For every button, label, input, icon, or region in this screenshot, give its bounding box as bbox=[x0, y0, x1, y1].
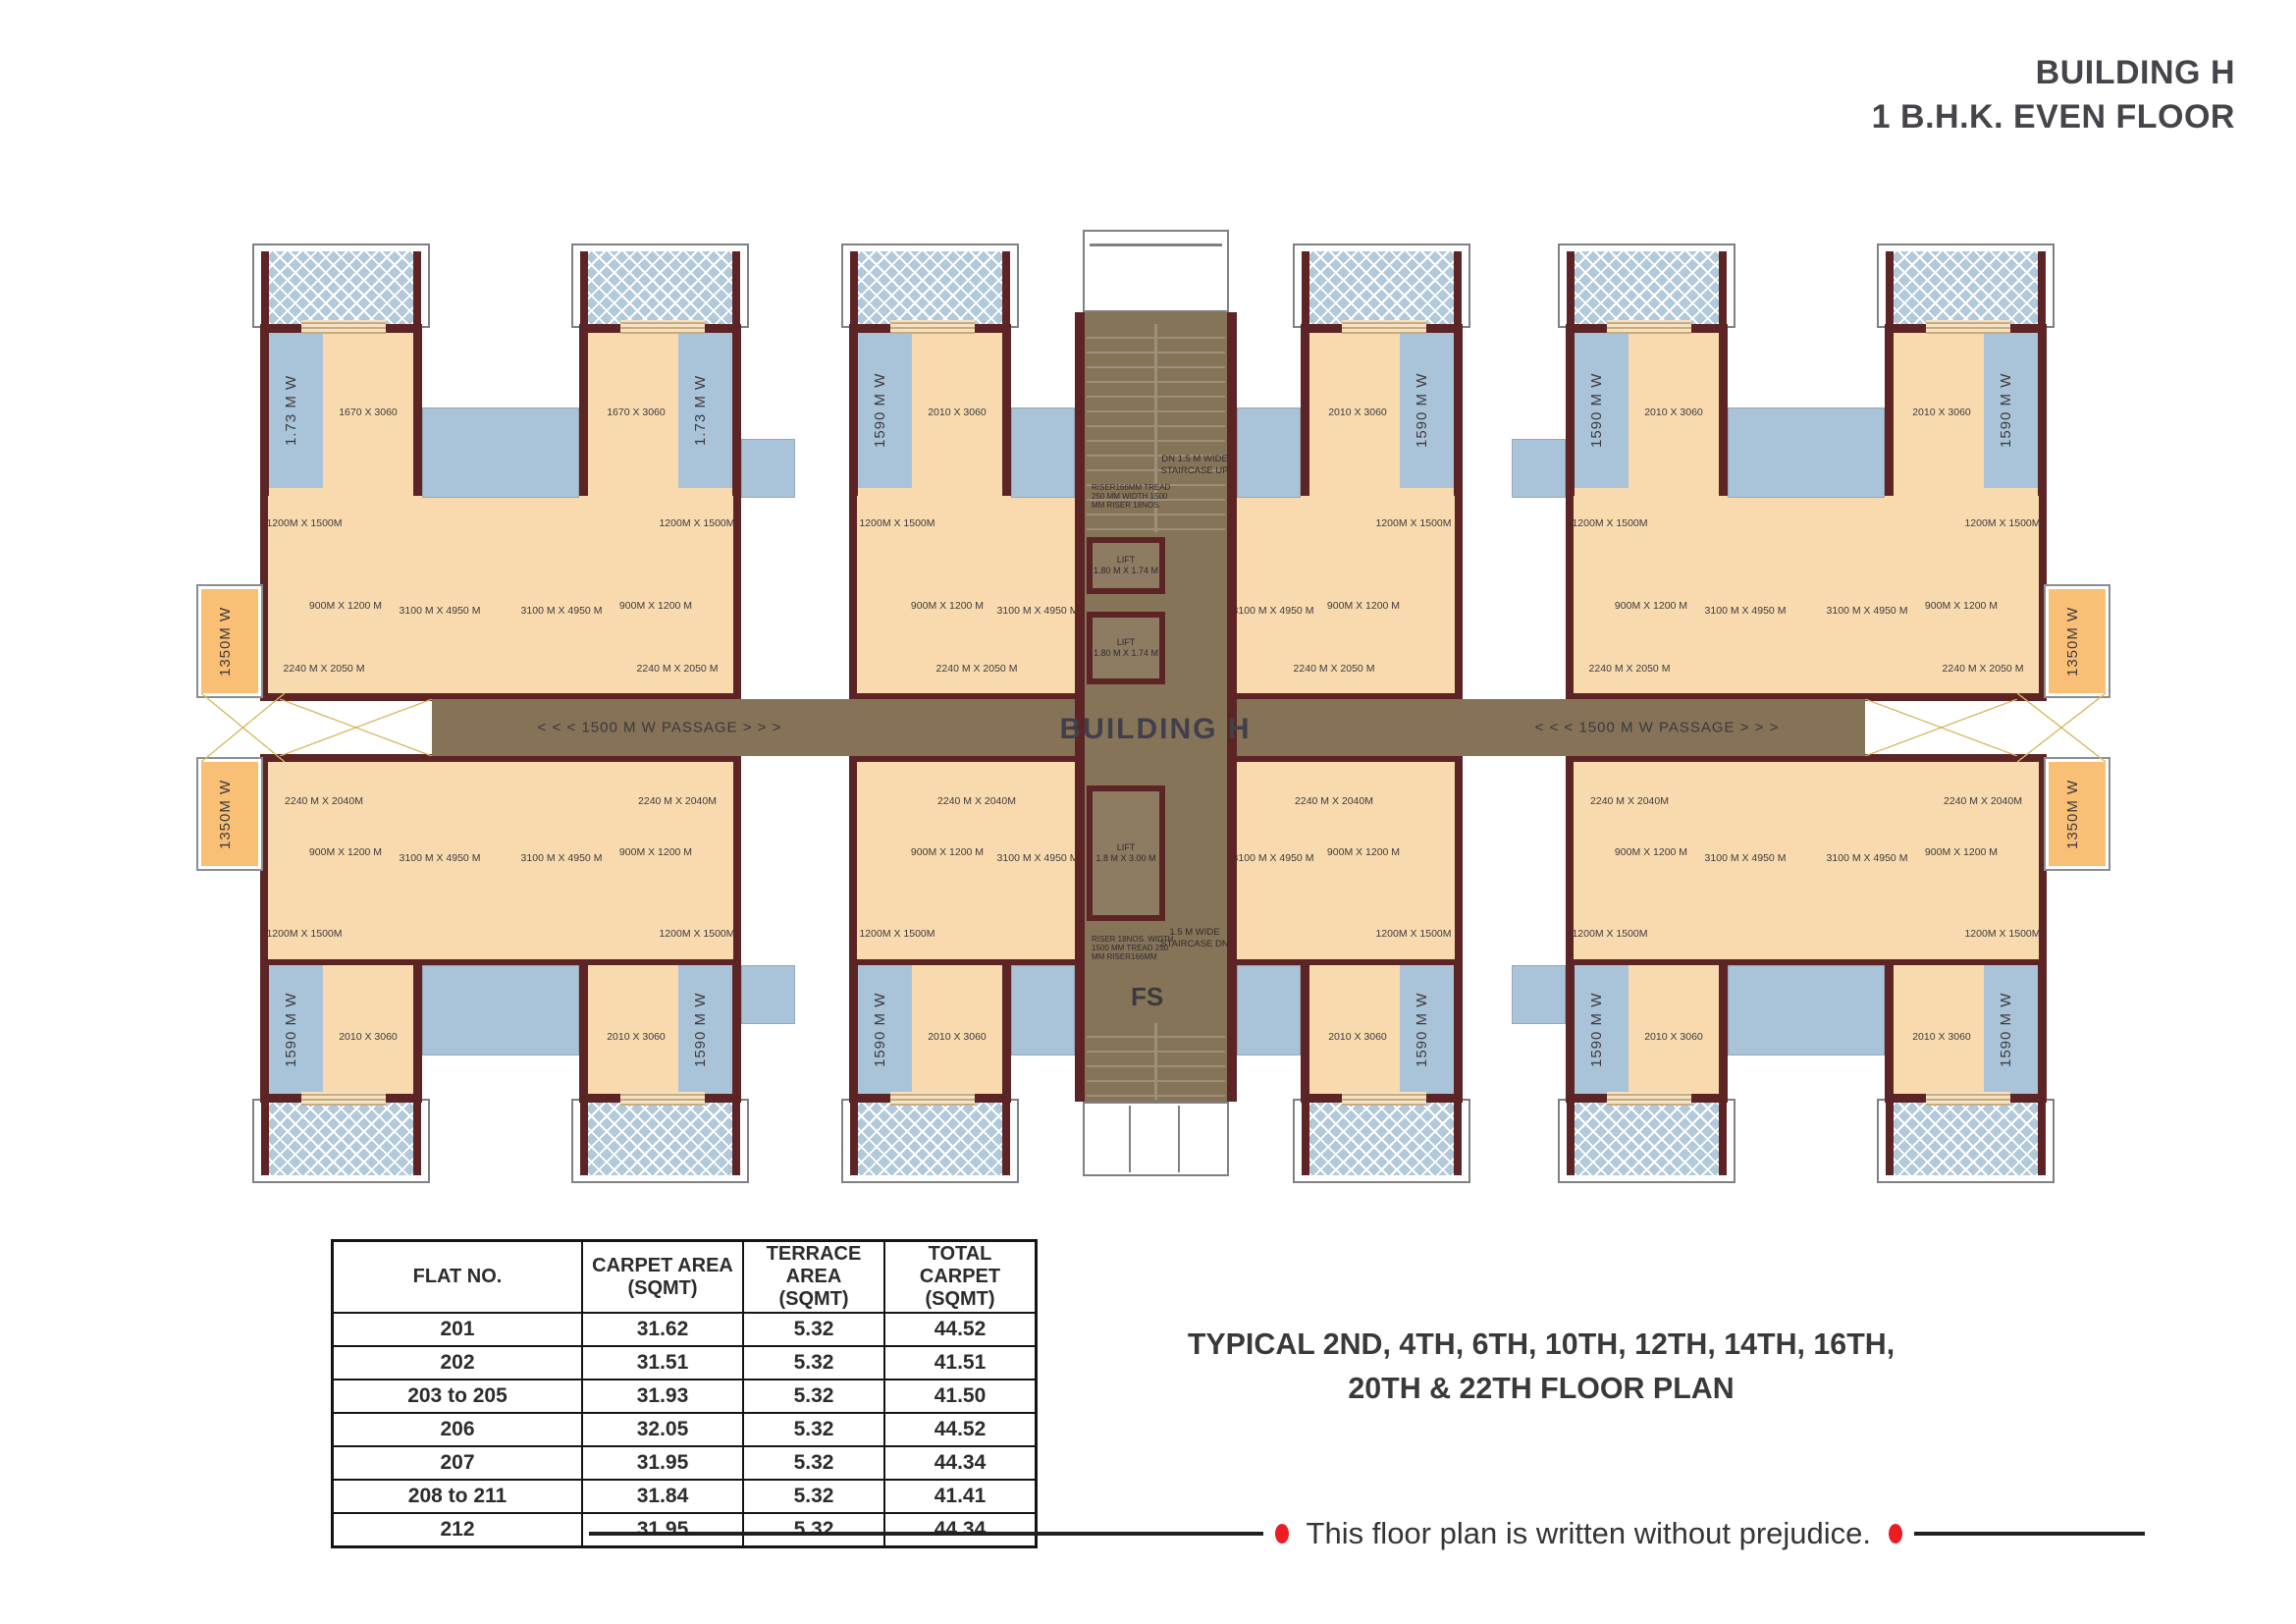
window-recess-upper bbox=[422, 407, 579, 498]
table-cell: 31.62 bbox=[582, 1313, 743, 1346]
balcony-strip-label: 1590 M W bbox=[1414, 983, 1439, 1076]
table-cell: 208 to 211 bbox=[333, 1480, 583, 1513]
terrace-hatch bbox=[1567, 251, 1727, 324]
toilet-size-label: 900M X 1200 M bbox=[911, 600, 984, 612]
toilet-size-label: 1200M X 1500M bbox=[1572, 517, 1647, 529]
toilet-size-label: 1200M X 1500M bbox=[1964, 928, 2040, 940]
core-bottom-ledge bbox=[1083, 1102, 1229, 1176]
dry-balcony-label: 1350M W bbox=[217, 599, 242, 683]
table-cell: 207 bbox=[333, 1446, 583, 1480]
living-size-label: 3100 M X 4950 M bbox=[1233, 605, 1314, 617]
toilet-size-label: 900M X 1200 M bbox=[619, 600, 692, 612]
balcony-strip-label: 1590 M W bbox=[283, 983, 308, 1076]
kitchen-size-label: 2240 M X 2040M bbox=[638, 795, 717, 807]
building-name-label: BUILDING H bbox=[1060, 713, 1252, 746]
disclaimer: This floor plan is written without preju… bbox=[589, 1516, 2145, 1551]
kitchen-size-label: 2240 M X 2040M bbox=[937, 795, 1016, 807]
toilet-size-label: 900M X 1200 M bbox=[1925, 600, 1998, 612]
balcony-strip-label: 1590 M W bbox=[692, 983, 718, 1076]
window-recess-upper bbox=[1011, 407, 1075, 498]
disclaimer-rule-right bbox=[1914, 1532, 2145, 1536]
toilet-size-label: 1200M X 1500M bbox=[659, 517, 734, 529]
living-size-label: 3100 M X 4950 M bbox=[1233, 852, 1314, 864]
toilet-size-label: 900M X 1200 M bbox=[309, 846, 382, 858]
dry-balcony-label: 1350M W bbox=[217, 772, 242, 856]
lift-1: LIFT1.80 M X 1.74 M bbox=[1087, 537, 1165, 594]
table-cell: 31.84 bbox=[582, 1480, 743, 1513]
table-row: 20131.625.3244.52 bbox=[333, 1313, 1037, 1346]
typical-floor-note-line2: 20TH & 22TH FLOOR PLAN bbox=[1050, 1366, 2032, 1410]
window-recess-lower bbox=[422, 965, 579, 1056]
kitchen-size-label: 2240 M X 2050 M bbox=[936, 663, 1018, 675]
riser-note: RISER166MM TREAD 250 MM WIDTH 1500 MM RI… bbox=[1092, 483, 1178, 510]
window-recess-lower bbox=[1512, 965, 1566, 1024]
balcony-strip-label: 1590 M W bbox=[1588, 351, 1614, 470]
kitchen-size-label: 2240 M X 2050 M bbox=[1294, 663, 1375, 675]
bedroom-size-label: 2010 X 3060 bbox=[1328, 1031, 1387, 1043]
balcony-strip-label: 1590 M W bbox=[1998, 983, 2023, 1076]
core-top-ledge-line bbox=[1090, 244, 1222, 246]
bedroom-size-label: 1670 X 3060 bbox=[607, 406, 666, 418]
living-size-label: 3100 M X 4950 M bbox=[400, 852, 481, 864]
window-sill bbox=[1607, 1092, 1691, 1106]
red-dot-icon bbox=[1275, 1524, 1289, 1543]
terrace-hatch bbox=[850, 1103, 1010, 1175]
staircase-divider bbox=[1154, 1023, 1157, 1100]
bedroom-size-label: 2010 X 3060 bbox=[1644, 406, 1703, 418]
window-sill bbox=[890, 320, 975, 334]
living-size-label: 3100 M X 4950 M bbox=[1827, 852, 1908, 864]
window-sill bbox=[1926, 320, 2010, 334]
fs-label: FS bbox=[1131, 982, 1163, 1012]
table-header: TOTAL CARPET(SQMT) bbox=[884, 1241, 1037, 1314]
passage-label: < < < 1500 M W PASSAGE > > > bbox=[538, 720, 782, 736]
terrace-hatch bbox=[261, 251, 421, 324]
toilet-size-label: 900M X 1200 M bbox=[1615, 846, 1687, 858]
table-cell: 31.93 bbox=[582, 1380, 743, 1413]
balcony-strip-label: 1.73 M W bbox=[283, 351, 308, 470]
typical-floor-note: TYPICAL 2ND, 4TH, 6TH, 10TH, 12TH, 14TH,… bbox=[1050, 1322, 2032, 1410]
floor-plan-page: BUILDING H 1 B.H.K. EVEN FLOOR < < < 150… bbox=[0, 0, 2296, 1624]
table-row: 203 to 20531.935.3241.50 bbox=[333, 1380, 1037, 1413]
bedroom-size-label: 2010 X 3060 bbox=[1644, 1031, 1703, 1043]
toilet-size-label: 1200M X 1500M bbox=[266, 517, 342, 529]
table-cell: 5.32 bbox=[743, 1413, 884, 1446]
table-row: 208 to 21131.845.3241.41 bbox=[333, 1480, 1037, 1513]
living-size-label: 3100 M X 4950 M bbox=[997, 605, 1079, 617]
core-bottom-ledge-line bbox=[1178, 1106, 1180, 1172]
table-cell: 5.32 bbox=[743, 1313, 884, 1346]
balcony-strip-label: 1590 M W bbox=[1588, 983, 1614, 1076]
balcony-strip-label: 1.73 M W bbox=[692, 351, 718, 470]
bedroom-size-label: 2010 X 3060 bbox=[928, 406, 987, 418]
terrace-hatch bbox=[580, 1103, 740, 1175]
bedroom-size-label: 2010 X 3060 bbox=[339, 1031, 398, 1043]
table-header: CARPET AREA(SQMT) bbox=[582, 1241, 743, 1314]
toilet-size-label: 900M X 1200 M bbox=[911, 846, 984, 858]
living-size-label: 3100 M X 4950 M bbox=[521, 605, 603, 617]
table-cell: 44.52 bbox=[884, 1413, 1037, 1446]
toilet-size-label: 1200M X 1500M bbox=[659, 928, 734, 940]
passage-label: < < < 1500 M W PASSAGE > > > bbox=[1535, 720, 1780, 736]
living-size-label: 3100 M X 4950 M bbox=[997, 852, 1079, 864]
core-bottom-ledge-line bbox=[1129, 1106, 1131, 1172]
toilet-size-label: 1200M X 1500M bbox=[1375, 928, 1451, 940]
balcony-strip-label: 1590 M W bbox=[872, 351, 897, 470]
toilet-size-label: 900M X 1200 M bbox=[1327, 600, 1400, 612]
core-top-ledge bbox=[1083, 230, 1229, 312]
living-size-label: 3100 M X 4950 M bbox=[400, 605, 481, 617]
table-cell: 41.41 bbox=[884, 1480, 1037, 1513]
table-cell: 44.34 bbox=[884, 1446, 1037, 1480]
window-sill bbox=[1926, 1092, 2010, 1106]
window-recess-lower bbox=[1237, 965, 1301, 1056]
table-header: FLAT NO. bbox=[333, 1241, 583, 1314]
table-cell: 44.52 bbox=[884, 1313, 1037, 1346]
table-cell: 202 bbox=[333, 1346, 583, 1380]
bedroom-size-label: 2010 X 3060 bbox=[1912, 406, 1971, 418]
terrace-hatch bbox=[1302, 1103, 1462, 1175]
terrace-hatch bbox=[1886, 1103, 2046, 1175]
window-sill bbox=[620, 320, 705, 334]
table-cell: 203 to 205 bbox=[333, 1380, 583, 1413]
window-sill bbox=[1342, 320, 1426, 334]
table-header: TERRACE AREA(SQMT) bbox=[743, 1241, 884, 1314]
toilet-size-label: 1200M X 1500M bbox=[1375, 517, 1451, 529]
window-recess-lower bbox=[741, 965, 795, 1024]
staircase-label: 1.5 M WIDE STAIRCASE DN bbox=[1160, 927, 1229, 950]
toilet-size-label: 900M X 1200 M bbox=[309, 600, 382, 612]
toilet-size-label: 1200M X 1500M bbox=[266, 928, 342, 940]
table-cell: 31.51 bbox=[582, 1346, 743, 1380]
table-cell: 41.50 bbox=[884, 1380, 1037, 1413]
table-cell: 201 bbox=[333, 1313, 583, 1346]
disclaimer-text: This floor plan is written without preju… bbox=[1307, 1516, 1871, 1551]
kitchen-size-label: 2240 M X 2050 M bbox=[1589, 663, 1671, 675]
staircase-label: DN 1.5 M WIDE STAIRCASE UP bbox=[1160, 454, 1229, 477]
dimension-x-lines bbox=[280, 699, 432, 756]
dry-balcony-label: 1350M W bbox=[2064, 599, 2090, 683]
table-row: 20731.955.3244.34 bbox=[333, 1446, 1037, 1480]
dimension-x-lines bbox=[2017, 693, 2106, 762]
bedroom-size-label: 2010 X 3060 bbox=[1912, 1031, 1971, 1043]
window-recess-upper bbox=[741, 439, 795, 498]
bedroom-size-label: 2010 X 3060 bbox=[928, 1031, 987, 1043]
kitchen-size-label: 2240 M X 2040M bbox=[1590, 795, 1669, 807]
window-sill bbox=[1342, 1092, 1426, 1106]
toilet-size-label: 1200M X 1500M bbox=[1572, 928, 1647, 940]
window-sill bbox=[890, 1092, 975, 1106]
terrace-hatch bbox=[1302, 251, 1462, 324]
toilet-size-label: 1200M X 1500M bbox=[859, 928, 934, 940]
toilet-size-label: 900M X 1200 M bbox=[1615, 600, 1687, 612]
living-size-label: 3100 M X 4950 M bbox=[1827, 605, 1908, 617]
flat-area-table-wrap: FLAT NO.CARPET AREA(SQMT)TERRACE AREA(SQ… bbox=[331, 1239, 1038, 1548]
toilet-size-label: 900M X 1200 M bbox=[619, 846, 692, 858]
bedroom-size-label: 2010 X 3060 bbox=[1328, 406, 1387, 418]
table-cell: 5.32 bbox=[743, 1480, 884, 1513]
window-sill bbox=[620, 1092, 705, 1106]
table-row: 20231.515.3241.51 bbox=[333, 1346, 1037, 1380]
kitchen-size-label: 2240 M X 2040M bbox=[285, 795, 363, 807]
terrace-hatch bbox=[580, 251, 740, 324]
table-cell: 5.32 bbox=[743, 1446, 884, 1480]
dimension-x-lines bbox=[1865, 699, 2017, 756]
toilet-size-label: 1200M X 1500M bbox=[859, 517, 934, 529]
window-recess-upper bbox=[1728, 407, 1885, 498]
window-sill bbox=[1607, 320, 1691, 334]
living-size-label: 3100 M X 4950 M bbox=[1705, 852, 1787, 864]
table-cell: 31.95 bbox=[582, 1446, 743, 1480]
window-recess-upper bbox=[1512, 439, 1566, 498]
typical-floor-note-line1: TYPICAL 2ND, 4TH, 6TH, 10TH, 12TH, 14TH,… bbox=[1050, 1322, 2032, 1366]
living-size-label: 3100 M X 4950 M bbox=[521, 852, 603, 864]
toilet-size-label: 1200M X 1500M bbox=[1964, 517, 2040, 529]
window-recess-lower bbox=[1011, 965, 1075, 1056]
kitchen-size-label: 2240 M X 2050 M bbox=[1943, 663, 2024, 675]
table-cell: 5.32 bbox=[743, 1380, 884, 1413]
table-cell: 212 bbox=[333, 1513, 583, 1547]
bedroom-size-label: 2010 X 3060 bbox=[607, 1031, 666, 1043]
bedroom-size-label: 1670 X 3060 bbox=[339, 406, 398, 418]
balcony-strip-label: 1590 M W bbox=[1414, 351, 1439, 470]
window-recess-upper bbox=[1237, 407, 1301, 498]
kitchen-size-label: 2240 M X 2050 M bbox=[637, 663, 719, 675]
disclaimer-rule-left bbox=[589, 1532, 1263, 1536]
window-sill bbox=[301, 1092, 386, 1106]
kitchen-size-label: 2240 M X 2050 M bbox=[284, 663, 365, 675]
table-cell: 32.05 bbox=[582, 1413, 743, 1446]
toilet-size-label: 900M X 1200 M bbox=[1327, 846, 1400, 858]
red-dot-icon bbox=[1889, 1524, 1902, 1543]
terrace-hatch bbox=[1886, 251, 2046, 324]
terrace-hatch bbox=[1567, 1103, 1727, 1175]
balcony-strip-label: 1590 M W bbox=[872, 983, 897, 1076]
table-cell: 41.51 bbox=[884, 1346, 1037, 1380]
lift-3: LIFT1.8 M X 3.00 M bbox=[1087, 785, 1165, 921]
window-sill bbox=[301, 320, 386, 334]
terrace-hatch bbox=[850, 251, 1010, 324]
terrace-hatch bbox=[261, 1103, 421, 1175]
table-row: 20632.055.3244.52 bbox=[333, 1413, 1037, 1446]
toilet-size-label: 900M X 1200 M bbox=[1925, 846, 1998, 858]
flat-area-table: FLAT NO.CARPET AREA(SQMT)TERRACE AREA(SQ… bbox=[331, 1239, 1038, 1548]
window-recess-lower bbox=[1728, 965, 1885, 1056]
table-cell: 206 bbox=[333, 1413, 583, 1446]
table-cell: 5.32 bbox=[743, 1346, 884, 1380]
kitchen-size-label: 2240 M X 2040M bbox=[1944, 795, 2022, 807]
living-size-label: 3100 M X 4950 M bbox=[1705, 605, 1787, 617]
dry-balcony-label: 1350M W bbox=[2064, 772, 2090, 856]
dimension-x-lines bbox=[201, 693, 285, 762]
balcony-strip-label: 1590 M W bbox=[1998, 351, 2023, 470]
kitchen-size-label: 2240 M X 2040M bbox=[1295, 795, 1373, 807]
lift-2: LIFT1.80 M X 1.74 M bbox=[1087, 612, 1165, 684]
